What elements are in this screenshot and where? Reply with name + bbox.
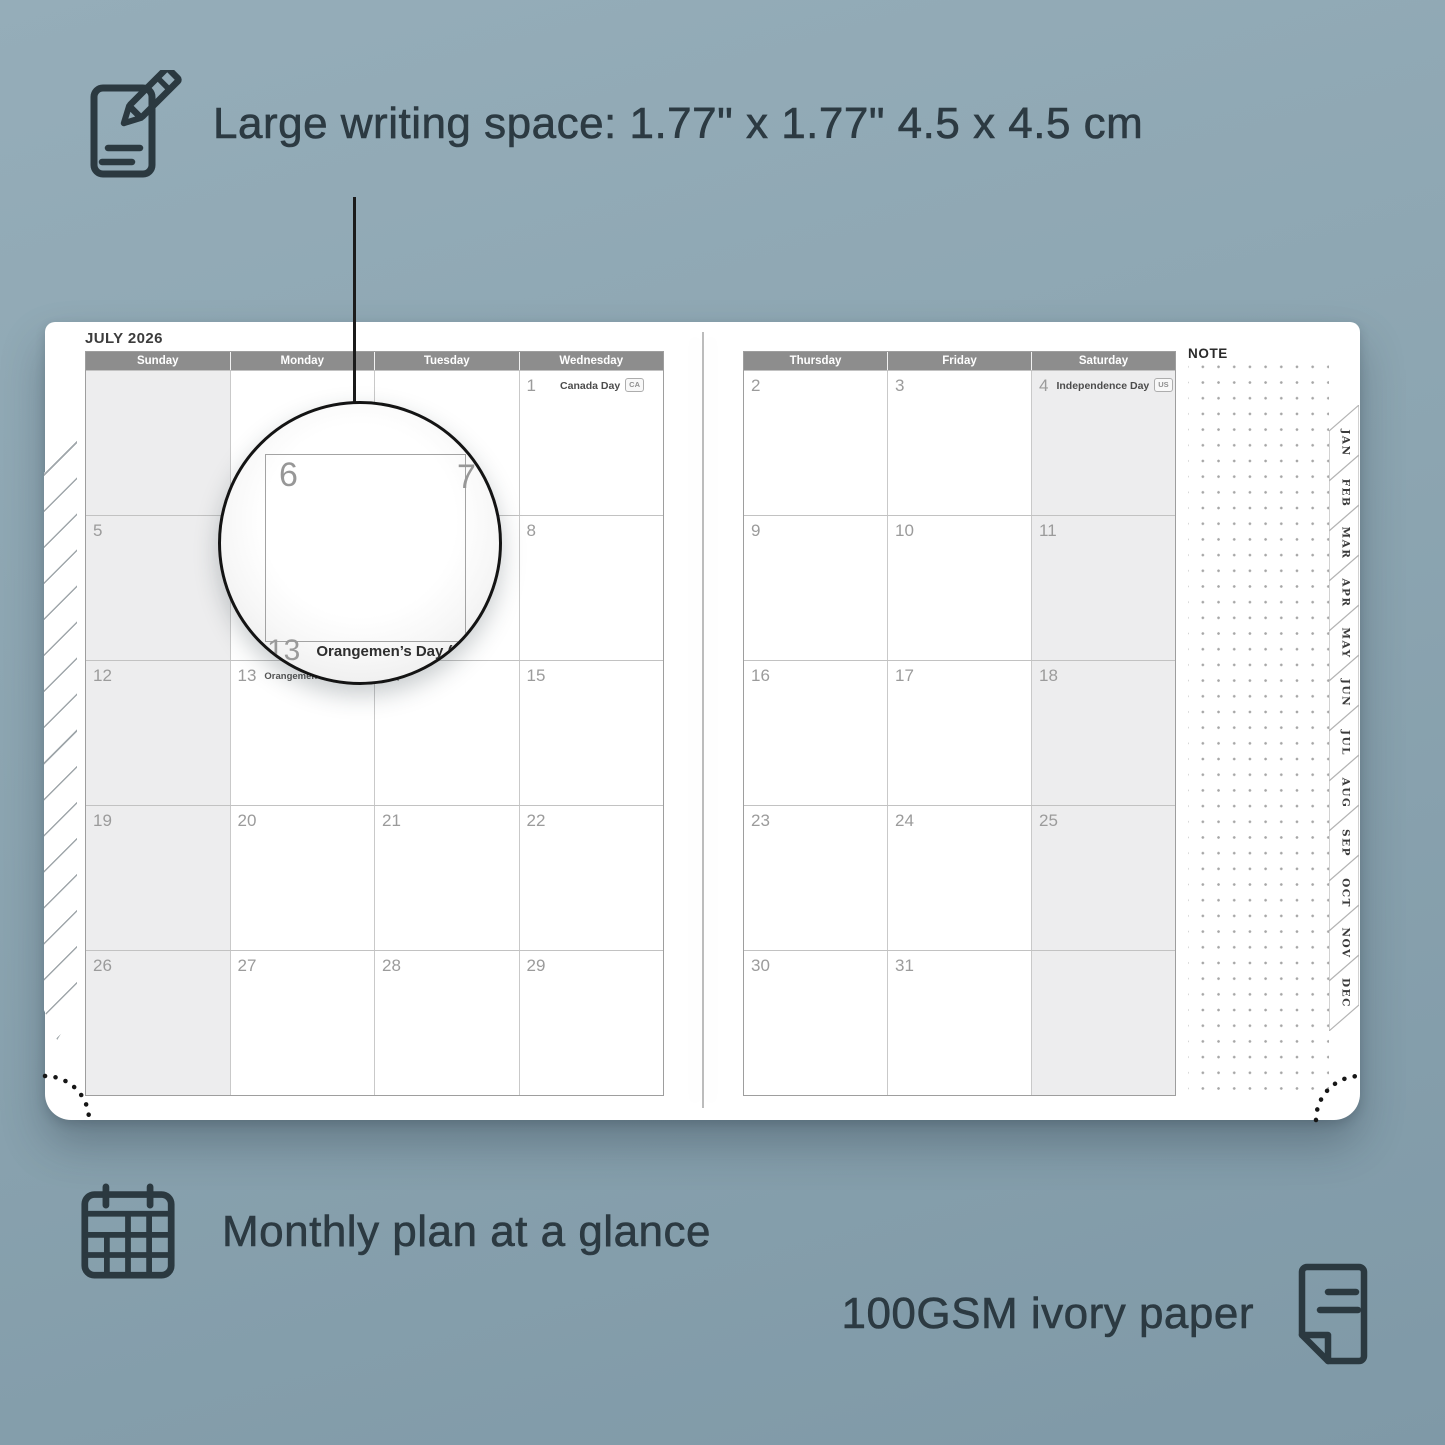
feature-monthly-plan: Monthly plan at a glance [80,1182,711,1282]
day-number: 10 [895,521,914,541]
month-title: JULY 2026 [85,330,163,347]
day-cell: 5 [86,516,230,660]
day-number: 27 [238,956,257,976]
day-number: 25 [1039,811,1058,831]
day-cell: 27 [230,951,375,1095]
month-tab-label: MAR [1340,527,1352,560]
magnified-day-number: 6 [279,456,298,495]
magnified-holiday-row: 13 Orangemen’s Day (n.i.) UK [267,634,502,668]
stitch-arc-left [39,1070,95,1126]
holiday-entry: Independence DayUS [1056,376,1172,397]
calendar-week-row: 234Independence DayUS [744,370,1175,515]
day-cell: 24 [887,806,1031,950]
day-number: 13 [238,666,257,686]
page-edge-hatch [44,440,77,1040]
calendar-week-row: 3031 [744,950,1175,1095]
day-cell: 10 [887,516,1031,660]
month-tab-label: AUG [1340,777,1352,809]
calendar-right-page: ThursdayFridaySaturday234Independence Da… [743,351,1176,1096]
paper-icon [1294,1262,1372,1366]
day-cell: 15 [519,661,664,805]
magnified-next-day-number: 7 [457,458,476,497]
day-cell: 4Independence DayUS [1031,371,1175,515]
planner-sheet: JULY 2026 SundayMondayTuesdayWednesday1C… [45,322,1360,1120]
calendar-week-row: 26272829 [86,950,663,1095]
day-cell: 25 [1031,806,1175,950]
day-cell: 22 [519,806,664,950]
day-number: 15 [527,666,546,686]
day-header: Wednesday [519,352,664,370]
magnified-holiday-label: Orangemen’s Day (n.i.) [316,643,479,660]
feature-writing-space-label: Large writing space: 1.77" x 1.77" 4.5 x… [213,99,1143,149]
month-tab-label: FEB [1340,479,1352,508]
feature-paper-label: 100GSM ivory paper [841,1289,1254,1339]
day-number: 29 [527,956,546,976]
month-tab-label: JUL [1340,729,1352,756]
month-tab-label: APR [1340,577,1352,607]
magnified-below-day-number: 13 [267,634,300,668]
feature-paper: 100GSM ivory paper [841,1262,1372,1366]
holiday-country-badge: US [1154,378,1172,392]
month-tabs: JANFEBMARAPRMAYJUNJULAUGSEPOCTNOVDEC [1329,405,1359,1031]
day-number: 9 [751,521,760,541]
calendar-week-row: 91011 [744,515,1175,660]
day-cell: 23 [744,806,887,950]
day-number: 12 [93,666,112,686]
stitch-arc-right [1310,1070,1366,1126]
note-label: NOTE [1188,346,1236,363]
day-number: 22 [527,811,546,831]
day-number: 5 [93,521,102,541]
day-cell: 14 [374,661,519,805]
day-header: Sunday [86,352,230,370]
calendar-grid-icon [80,1182,176,1282]
day-header: Thursday [744,352,887,370]
day-cell: 2 [744,371,887,515]
day-cell: 30 [744,951,887,1095]
day-number: 19 [93,811,112,831]
day-number: 30 [751,956,770,976]
day-cell: 19 [86,806,230,950]
day-cell [86,371,230,515]
day-number: 8 [527,521,536,541]
pencil-note-icon [88,70,183,178]
day-cell: 21 [374,806,519,950]
month-tab-label: DEC [1340,978,1352,1008]
holiday-label: Canada Day [560,380,620,392]
day-number: 2 [751,376,760,396]
day-cell: 31 [887,951,1031,1095]
month-tab-label: JUN [1340,678,1352,707]
magnifier-circle: 6 7 13 Orangemen’s Day (n.i.) UK [218,401,502,685]
day-cell: 20 [230,806,375,950]
calendar-week-row: 232425 [744,805,1175,950]
magnifier-pointer-line [353,197,356,405]
month-tab-label: MAY [1340,627,1352,658]
day-number: 18 [1039,666,1058,686]
day-number: 20 [238,811,257,831]
day-number: 11 [1039,521,1057,541]
day-number: 23 [751,811,770,831]
day-cell: 1Canada DayCA [519,371,664,515]
day-header-row: SundayMondayTuesdayWednesday [86,352,663,370]
day-cell: 29 [519,951,664,1095]
calendar-week-row: 161718 [744,660,1175,805]
month-tab-label: JAN [1340,428,1352,456]
page-spine [702,332,704,1108]
planner-product-showcase: Large writing space: 1.77" x 1.77" 4.5 x… [0,0,1445,1445]
day-number: 24 [895,811,914,831]
note-dot-grid [1188,356,1329,1090]
day-number: 3 [895,376,904,396]
day-cell: 26 [86,951,230,1095]
day-number: 26 [93,956,112,976]
day-cell: 28 [374,951,519,1095]
day-cell: 8 [519,516,664,660]
month-tab-label: OCT [1340,878,1352,908]
day-cell: 11 [1031,516,1175,660]
calendar-week-row: 19202122 [86,805,663,950]
day-cell: 16 [744,661,887,805]
day-number: 16 [751,666,770,686]
month-tab-label: NOV [1340,927,1352,958]
day-cell: 3 [887,371,1031,515]
day-cell [1031,951,1175,1095]
day-header: Tuesday [374,352,519,370]
day-number: 4 [1039,376,1048,396]
day-header-row: ThursdayFridaySaturday [744,352,1175,370]
feature-monthly-plan-label: Monthly plan at a glance [222,1207,711,1257]
month-tab-label: SEP [1340,829,1352,857]
holiday-entry: Canada DayCA [560,376,644,397]
day-header: Friday [887,352,1031,370]
feature-writing-space: Large writing space: 1.77" x 1.77" 4.5 x… [88,70,1143,178]
day-number: 31 [895,956,914,976]
holiday-label: Independence Day [1056,380,1149,392]
day-cell: 17 [887,661,1031,805]
day-cell: 9 [744,516,887,660]
day-cell: 12 [86,661,230,805]
day-number: 28 [382,956,401,976]
day-number: 1 [527,376,536,396]
day-header: Saturday [1031,352,1175,370]
holiday-country-badge: CA [625,378,644,392]
day-number: 21 [382,811,401,831]
day-cell: 18 [1031,661,1175,805]
day-number: 17 [895,666,914,686]
